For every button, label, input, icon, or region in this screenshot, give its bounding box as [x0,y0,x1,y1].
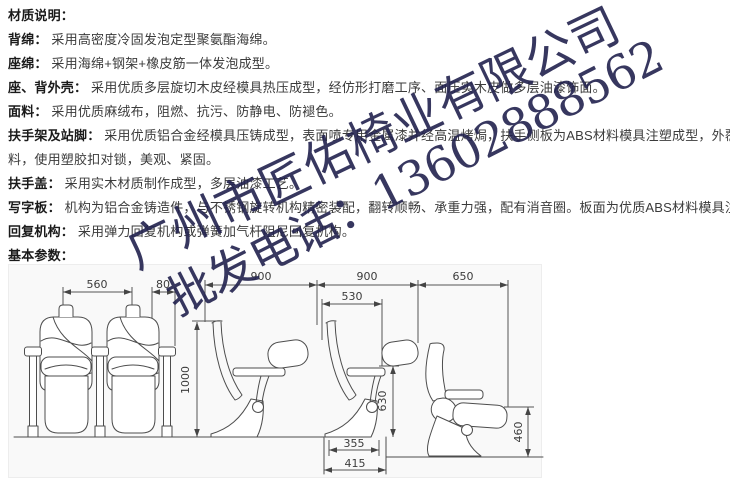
spec-line: 扶手盖： 采用实木材质制作成型，多层油漆工艺。 [8,172,730,196]
dim-label-80: 80 [156,278,170,291]
spec-line: 面料： 采用优质麻绒布，阻燃、抗污、防静电、防褪色。 [8,100,730,124]
spec-label: 回复机构： [8,224,74,239]
spec-label: 面料： [8,104,48,119]
dim-label-900b: 900 [357,270,378,283]
front-view-chairs [25,305,176,437]
dim-label-1000: 1000 [179,366,192,394]
spec-text: 采用海绵+钢架+橡皮筋一体发泡成型。 [51,56,278,71]
dim-label-530: 530 [342,290,363,303]
technical-drawing: 560 80 900 900 650 530 1000 630 460 355 … [0,258,730,482]
spec-label: 背绵： [8,32,48,47]
dim-label-560: 560 [87,278,108,291]
spec-label: 写字板： [8,200,61,215]
side-chair-folded [426,343,508,456]
spec-label: 扶手盖： [8,176,61,191]
pivot-joint [253,402,264,413]
spec-text: 采用实木材质制作成型，多层油漆工艺。 [65,176,303,191]
spec-label: 座绵： [8,56,48,71]
spec-text: 采用优质麻绒布，阻燃、抗污、防静电、防褪色。 [51,104,341,119]
dim-label-355: 355 [344,437,365,450]
side-chair-open-1 [211,321,310,437]
spec-line: 回复机构： 采用弹力回复机构或弹簧加气杆阻尼回复机构。 [8,220,730,244]
writing-tablet [347,368,385,376]
spec-text: 料，使用塑胶扣对锁，美观、紧固。 [8,152,219,167]
writing-tablet [233,368,285,376]
folded-back [426,343,447,401]
spec-text: 采用弹力回复机构或弹簧加气杆阻尼回复机构。 [78,224,355,239]
spec-line: 座、背外壳： 采用优质多层旋切木皮经模具热压成型，经仿形打磨工序、面压实木皮做多… [8,76,730,100]
dim-label-415: 415 [345,457,366,470]
front-chair-left [40,305,92,433]
pivot-joint [462,425,473,436]
folded-seat-cushion [452,402,507,429]
spec-label: 座、背外壳： [8,80,87,95]
spec-text: 采用高密度冷固发泡定型聚氨酯海绵。 [51,32,275,47]
page: 材质说明： 背绵： 采用高密度冷固发泡定型聚氨酯海绵。 座绵： 采用海绵+钢架+… [0,0,730,482]
materials-spec: 材质说明： 背绵： 采用高密度冷固发泡定型聚氨酯海绵。 座绵： 采用海绵+钢架+… [0,0,730,268]
headrest-tab [59,305,73,317]
spec-line: 座绵： 采用海绵+钢架+橡皮筋一体发泡成型。 [8,52,730,76]
seat-front-band [41,357,91,376]
tablet-support-arm [256,376,269,403]
headrest-tab [126,305,140,317]
front-chair-right [107,305,159,433]
flipped-seat [266,338,309,369]
spec-line: 扶手架及站脚： 采用优质铝合金经模具压铸成型，表面喷专用金属漆并经高温烤焗，扶手… [8,124,730,148]
spec-line-wrap: 料，使用塑胶扣对锁，美观、紧固。 [8,148,730,172]
seat-front-band [108,357,158,376]
seat-under-panel [45,376,88,433]
spec-heading: 材质说明： [8,4,730,28]
spec-line: 背绵： 采用高密度冷固发泡定型聚氨酯海绵。 [8,28,730,52]
spec-label: 扶手架及站脚： [8,128,100,143]
spec-label: 材质说明： [8,8,74,23]
seat-under-panel [112,376,155,433]
spec-text: 机构为铝合金铸造件，与不锈钢旋转机构精密装配，翻转顺畅、承重力强，配有消音圈。板… [65,200,730,215]
spec-line: 写字板： 机构为铝合金铸造件，与不锈钢旋转机构精密装配，翻转顺畅、承重力强，配有… [8,196,730,220]
armrest-side [445,390,483,399]
spec-text: 采用优质多层旋切木皮经模具热压成型，经仿形打磨工序、面压实木皮做多层油漆饰面。 [91,80,606,95]
dim-label-900a: 900 [251,270,272,283]
dim-label-630: 630 [376,391,389,412]
flipped-seat [381,339,420,368]
spec-text: 采用优质铝合金经模具压铸成型，表面喷专用金属漆并经高温烤焗，扶手侧板为ABS材料… [104,128,730,143]
dim-label-650: 650 [453,270,474,283]
side-chair-open-2 [325,321,419,437]
dim-label-460: 460 [512,422,525,443]
